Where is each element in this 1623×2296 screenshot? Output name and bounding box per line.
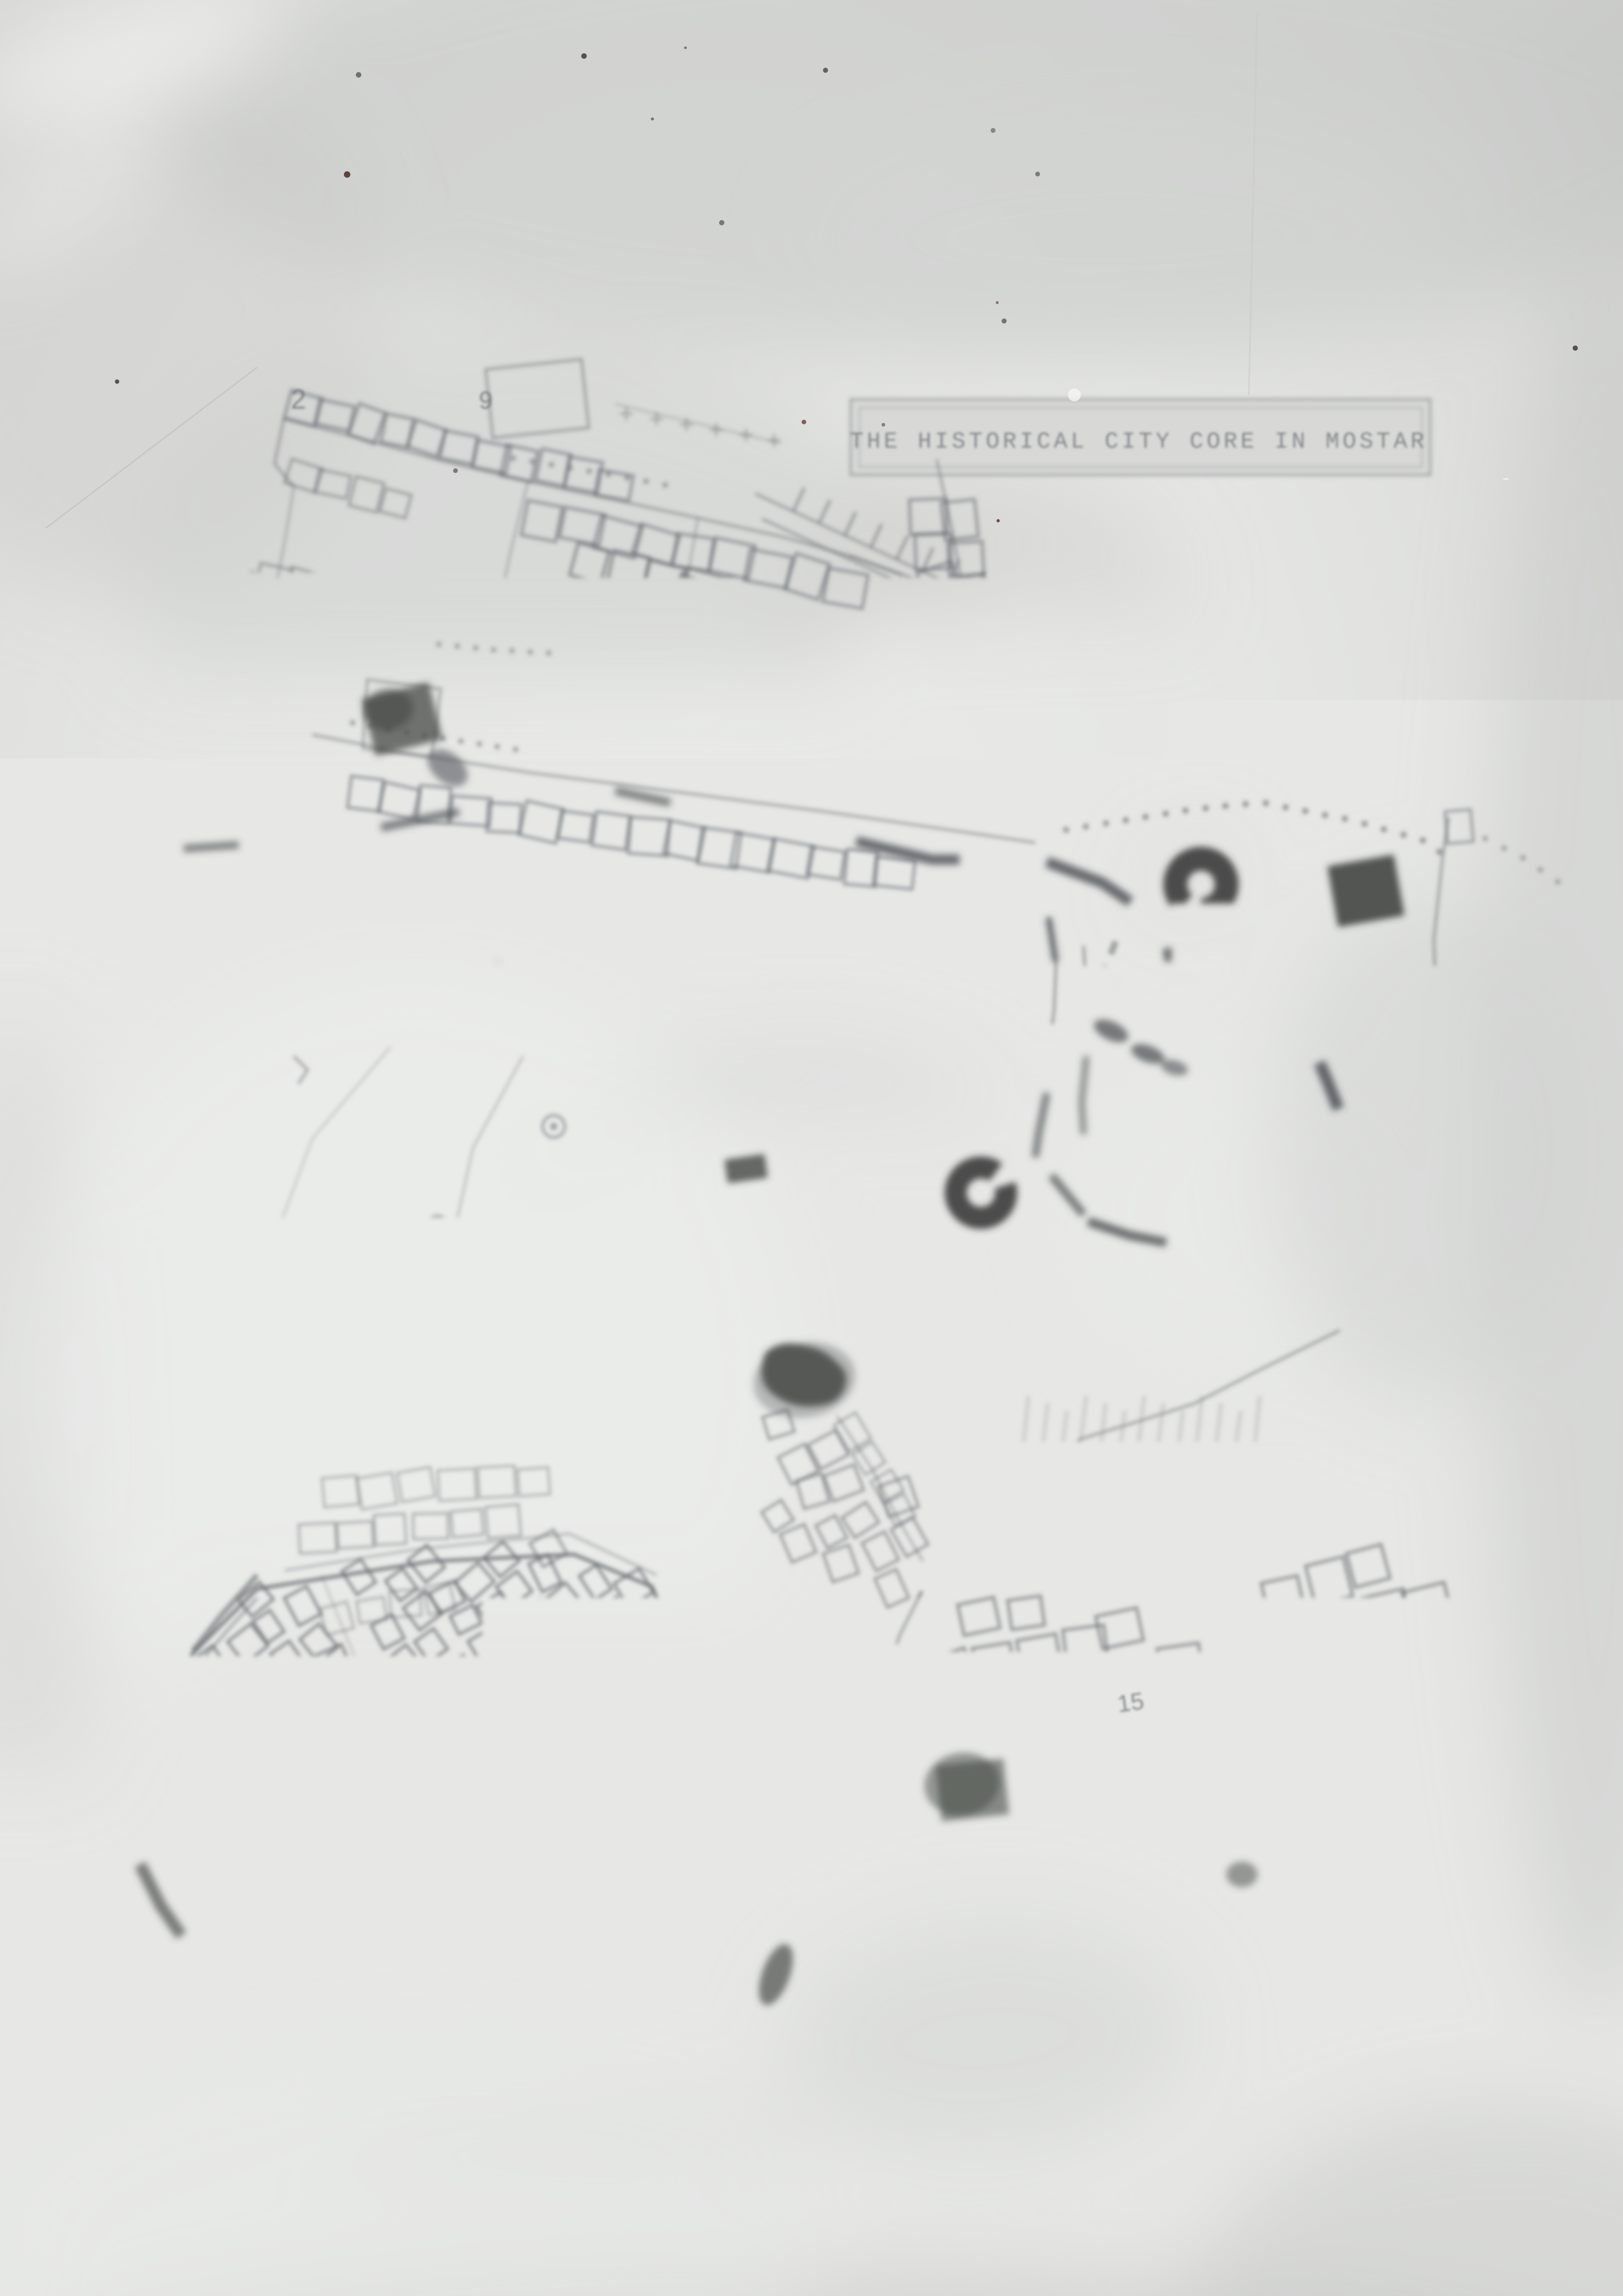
svg-text:16: 16 [983, 1836, 1008, 1861]
svg-text:13: 13 [729, 1355, 750, 1375]
svg-text:1: 1 [1109, 1071, 1121, 1096]
svg-text:7: 7 [908, 2002, 921, 2028]
svg-text:18: 18 [1393, 1087, 1413, 1106]
svg-text:3: 3 [317, 570, 331, 599]
svg-text:18: 18 [1453, 1505, 1472, 1524]
svg-text:12: 12 [289, 669, 316, 696]
svg-text:5: 5 [935, 1312, 949, 1339]
svg-text:8: 8 [1335, 533, 1351, 564]
svg-text:THE HISTORICAL CITY CORE IN MO: THE HISTORICAL CITY CORE IN MOSTAR [850, 429, 1427, 455]
svg-text:6: 6 [753, 1205, 766, 1231]
svg-text:2: 2 [1373, 794, 1390, 828]
svg-text:4: 4 [866, 723, 881, 752]
svg-text:18: 18 [1233, 878, 1254, 900]
svg-text:2: 2 [291, 384, 306, 415]
svg-text:14: 14 [637, 1353, 660, 1375]
svg-text:15: 15 [1116, 1688, 1146, 1717]
svg-text:8: 8 [1464, 817, 1474, 838]
svg-text:5: 5 [461, 1936, 474, 1961]
svg-text:9: 9 [479, 387, 493, 414]
